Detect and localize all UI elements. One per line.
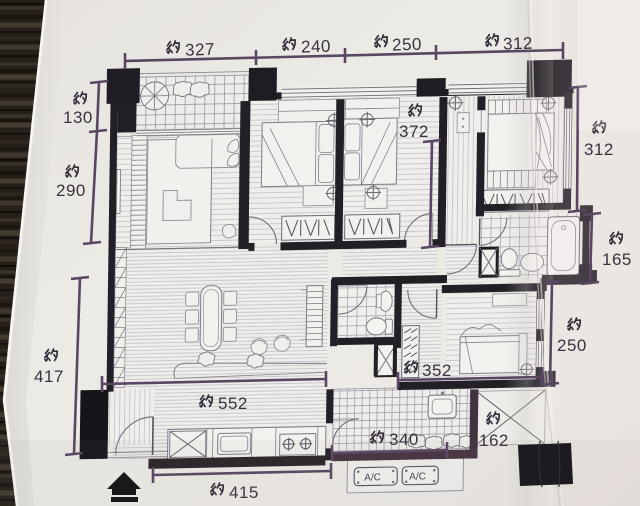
svg-text:312: 312 <box>584 140 614 159</box>
svg-text:352: 352 <box>422 361 452 380</box>
svg-text:250: 250 <box>557 336 587 355</box>
svg-text:240: 240 <box>301 37 332 57</box>
svg-text:312: 312 <box>503 34 534 54</box>
svg-text:552: 552 <box>218 394 248 413</box>
svg-text:327: 327 <box>185 40 216 60</box>
svg-text:417: 417 <box>34 367 64 386</box>
svg-text:250: 250 <box>392 35 423 55</box>
svg-text:165: 165 <box>602 250 632 269</box>
svg-text:372: 372 <box>399 122 429 141</box>
svg-text:290: 290 <box>56 181 86 200</box>
svg-text:130: 130 <box>63 108 93 127</box>
